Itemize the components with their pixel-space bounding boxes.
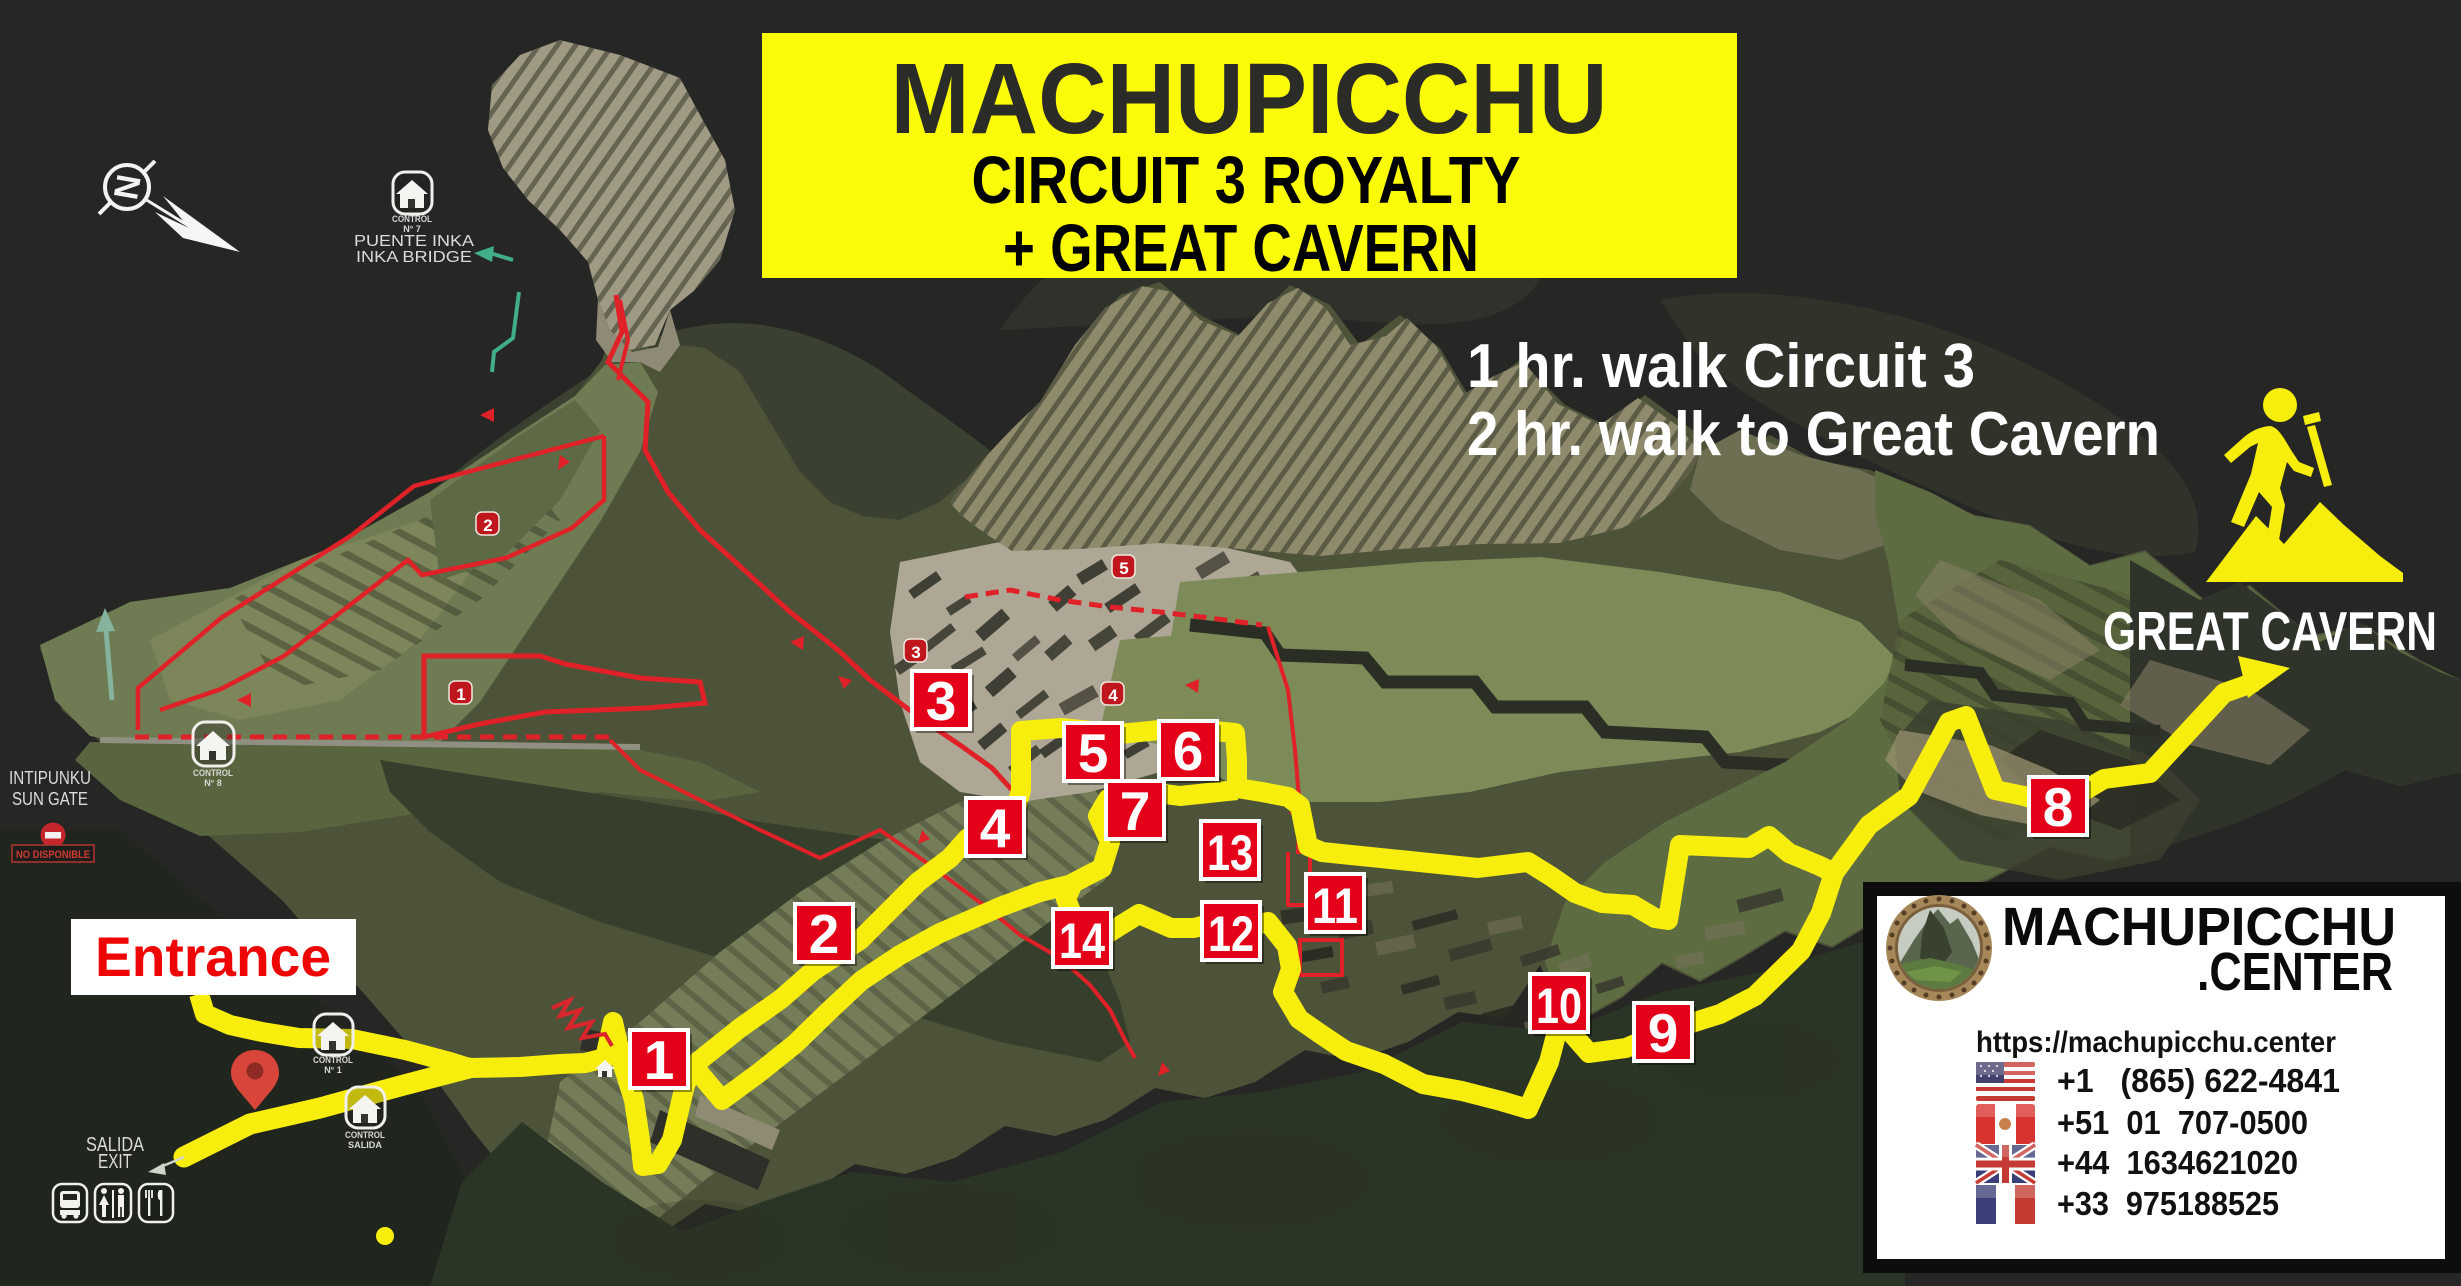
svg-text:GREAT CAVERN: GREAT CAVERN [2103, 600, 2437, 662]
svg-text:+33 975188525: +33 975188525 [2057, 1185, 2279, 1222]
svg-text:14: 14 [1059, 913, 1105, 969]
svg-text:3: 3 [911, 643, 920, 662]
svg-text:CONTROL: CONTROL [313, 1055, 353, 1065]
svg-text:+1 (865) 622-4841: +1 (865) 622-4841 [2057, 1062, 2340, 1099]
svg-text:MACHUPICCHU: MACHUPICCHU [891, 43, 1608, 155]
svg-text:+ GREAT CAVERN: + GREAT CAVERN [1003, 211, 1479, 286]
svg-text:INTIPUNKUSUN GATE: INTIPUNKUSUN GATE [9, 768, 91, 809]
svg-text:8: 8 [2043, 776, 2074, 838]
svg-text:NO DISPONIBLE: NO DISPONIBLE [16, 849, 90, 861]
svg-text:4: 4 [1108, 686, 1118, 705]
svg-text:7: 7 [1120, 780, 1151, 842]
svg-text:Entrance: Entrance [95, 925, 331, 988]
svg-text:9: 9 [1648, 1002, 1679, 1064]
svg-text:5: 5 [1119, 559, 1128, 578]
svg-text:SALIDA: SALIDA [348, 1140, 383, 1150]
svg-text:1: 1 [644, 1029, 675, 1091]
svg-text:5: 5 [1078, 722, 1109, 784]
svg-text:CONTROL: CONTROL [392, 214, 432, 224]
svg-text:CONTROL: CONTROL [193, 768, 233, 778]
svg-text:https://machupicchu.center: https://machupicchu.center [1976, 1026, 2336, 1059]
svg-text:.CENTER: .CENTER [2197, 942, 2393, 1002]
svg-text:4: 4 [980, 797, 1011, 859]
svg-text:N° 1: N° 1 [324, 1065, 342, 1075]
svg-text:13: 13 [1207, 825, 1253, 881]
svg-text:N° 8: N° 8 [204, 778, 222, 788]
svg-text:2 hr. walk to Great Cavern: 2 hr. walk to Great Cavern [1467, 400, 2160, 469]
svg-text:+44 1634621020: +44 1634621020 [2057, 1144, 2298, 1181]
svg-text:6: 6 [1173, 720, 1204, 782]
svg-text:2: 2 [483, 516, 492, 535]
svg-text:11: 11 [1312, 878, 1358, 934]
svg-text:PUENTE INKAINKA BRIDGE: PUENTE INKAINKA BRIDGE [354, 233, 474, 266]
svg-text:2: 2 [809, 903, 840, 965]
svg-text:CIRCUIT 3 ROYALTY: CIRCUIT 3 ROYALTY [972, 143, 1521, 218]
svg-text:3: 3 [926, 670, 957, 732]
svg-text:CONTROL: CONTROL [345, 1130, 385, 1140]
svg-text:1 hr. walk Circuit 3: 1 hr. walk Circuit 3 [1467, 332, 1975, 401]
svg-text:1: 1 [456, 685, 465, 704]
svg-text:+51 01 707-0500: +51 01 707-0500 [2057, 1104, 2308, 1141]
svg-text:10: 10 [1536, 978, 1582, 1034]
svg-text:12: 12 [1208, 906, 1254, 962]
